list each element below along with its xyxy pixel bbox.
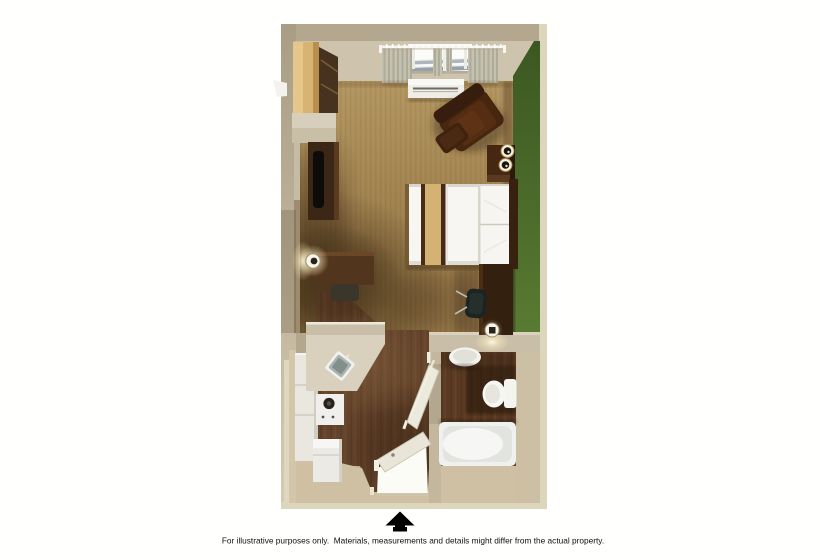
svg-text:For illustrative purposes only: For illustrative purposes only. Material… xyxy=(222,536,604,546)
